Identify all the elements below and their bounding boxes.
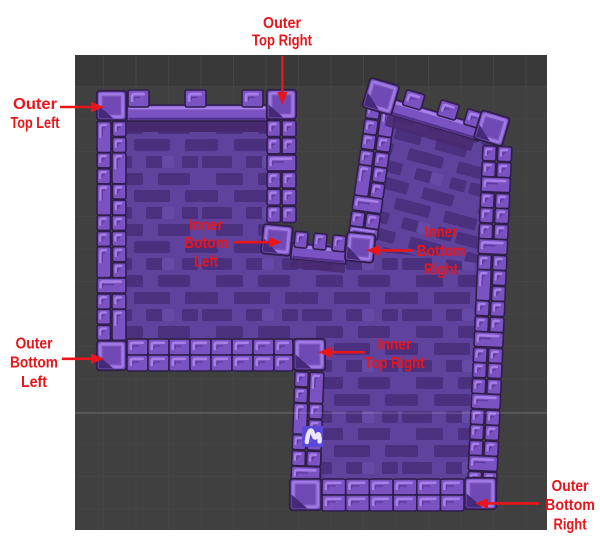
svg-text:Inner: Inner <box>189 217 223 234</box>
svg-text:Outer: Outer <box>552 478 589 495</box>
svg-text:Botom: Botom <box>184 235 228 252</box>
svg-text:Outer: Outer <box>263 15 301 32</box>
svg-text:Top Left: Top Left <box>11 115 61 132</box>
svg-text:Bottom: Bottom <box>10 355 58 372</box>
svg-text:Top Right: Top Right <box>252 33 313 50</box>
svg-text:Top Right: Top Right <box>365 355 426 372</box>
svg-text:Right: Right <box>554 517 588 534</box>
svg-text:Bottom: Bottom <box>545 497 595 514</box>
svg-text:Right: Right <box>424 262 459 279</box>
svg-text:Inner: Inner <box>378 337 412 354</box>
svg-text:Left: Left <box>194 254 219 271</box>
svg-text:Left: Left <box>21 374 48 391</box>
svg-text:Inner: Inner <box>425 224 458 241</box>
svg-text:Outer: Outer <box>16 335 53 352</box>
svg-text:Bottom: Bottom <box>417 243 466 260</box>
svg-text:Outer: Outer <box>13 96 57 113</box>
